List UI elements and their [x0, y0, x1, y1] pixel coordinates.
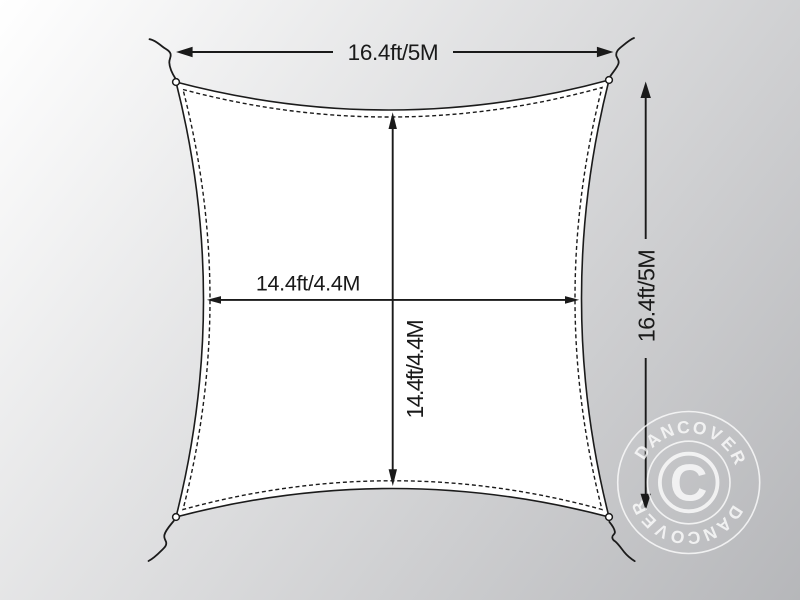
- svg-text:16.4ft/5M: 16.4ft/5M: [633, 250, 659, 343]
- svg-text:C: C: [670, 455, 708, 513]
- svg-text:14.4ft/4.4M: 14.4ft/4.4M: [402, 321, 428, 419]
- svg-text:16.4ft/5M: 16.4ft/5M: [348, 40, 439, 65]
- svg-text:14.4ft/4.4M: 14.4ft/4.4M: [256, 272, 360, 296]
- svg-text:C: C: [676, 417, 691, 438]
